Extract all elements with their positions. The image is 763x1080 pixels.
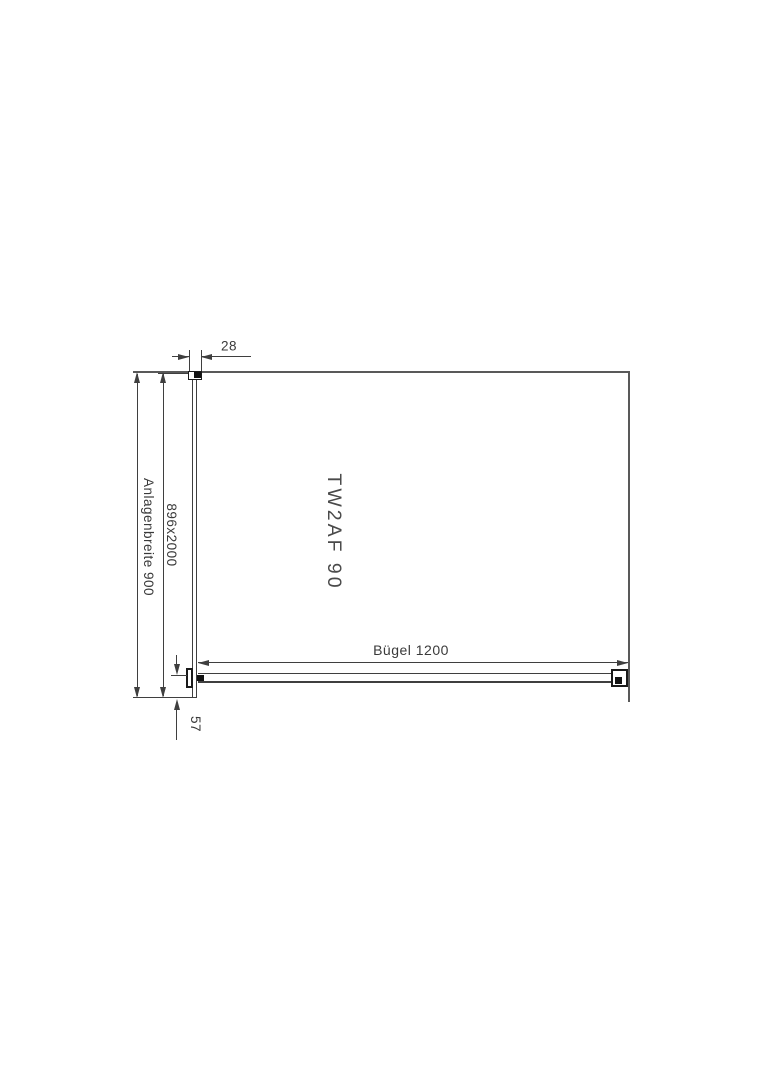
dim-top-width-label: 28 [221, 339, 237, 353]
dim-bar-offset-arrow-down [174, 664, 180, 675]
dim-bar-offset-line-lower [176, 707, 177, 740]
bar-wall-bracket-block [615, 677, 622, 684]
dim-top-width-arrow-right [201, 354, 212, 360]
dim-top-width-ext-right [201, 350, 202, 371]
model-label: TW2AF 90 [323, 473, 343, 590]
dim-top-width-ext-left [189, 350, 190, 371]
dim-glass-size-arrow-top [160, 372, 166, 383]
dim-installation-width-arrow-bottom [134, 687, 140, 698]
dim-bar-length-arrow-right [617, 660, 628, 666]
dim-glass-size-label: 896x2000 [164, 503, 178, 566]
dim-bar-length-line [198, 662, 629, 663]
dim-installation-width-arrow-top [134, 372, 140, 383]
dim-bar-offset-label: 57 [188, 715, 202, 731]
bar-glass-clamp [186, 668, 193, 689]
top-wall-profile-clamp [194, 372, 201, 378]
dim-top-width-arrow-left [178, 354, 189, 360]
dim-bar-offset-ref-line [171, 675, 188, 676]
dim-installation-width-label: Anlagenbreite 900 [141, 478, 155, 596]
bar-bottom-line [198, 681, 611, 683]
dim-glass-size-arrow-bottom [160, 687, 166, 698]
technical-drawing-canvas: Anlagenbreite 900 896x2000 28 TW2AF 90 B… [0, 0, 763, 1080]
bar-top-line [198, 673, 611, 675]
glass-panel-right-line [196, 372, 198, 698]
bar-glass-clamp-block [197, 675, 203, 681]
dim-bar-length-arrow-left [198, 660, 209, 666]
dim-installation-width-line [137, 374, 138, 696]
glass-panel-left-line [192, 372, 194, 698]
dim-bar-length-label: Bügel 1200 [373, 643, 449, 657]
wall-right-line [628, 371, 630, 702]
wall-top-line [133, 371, 630, 373]
